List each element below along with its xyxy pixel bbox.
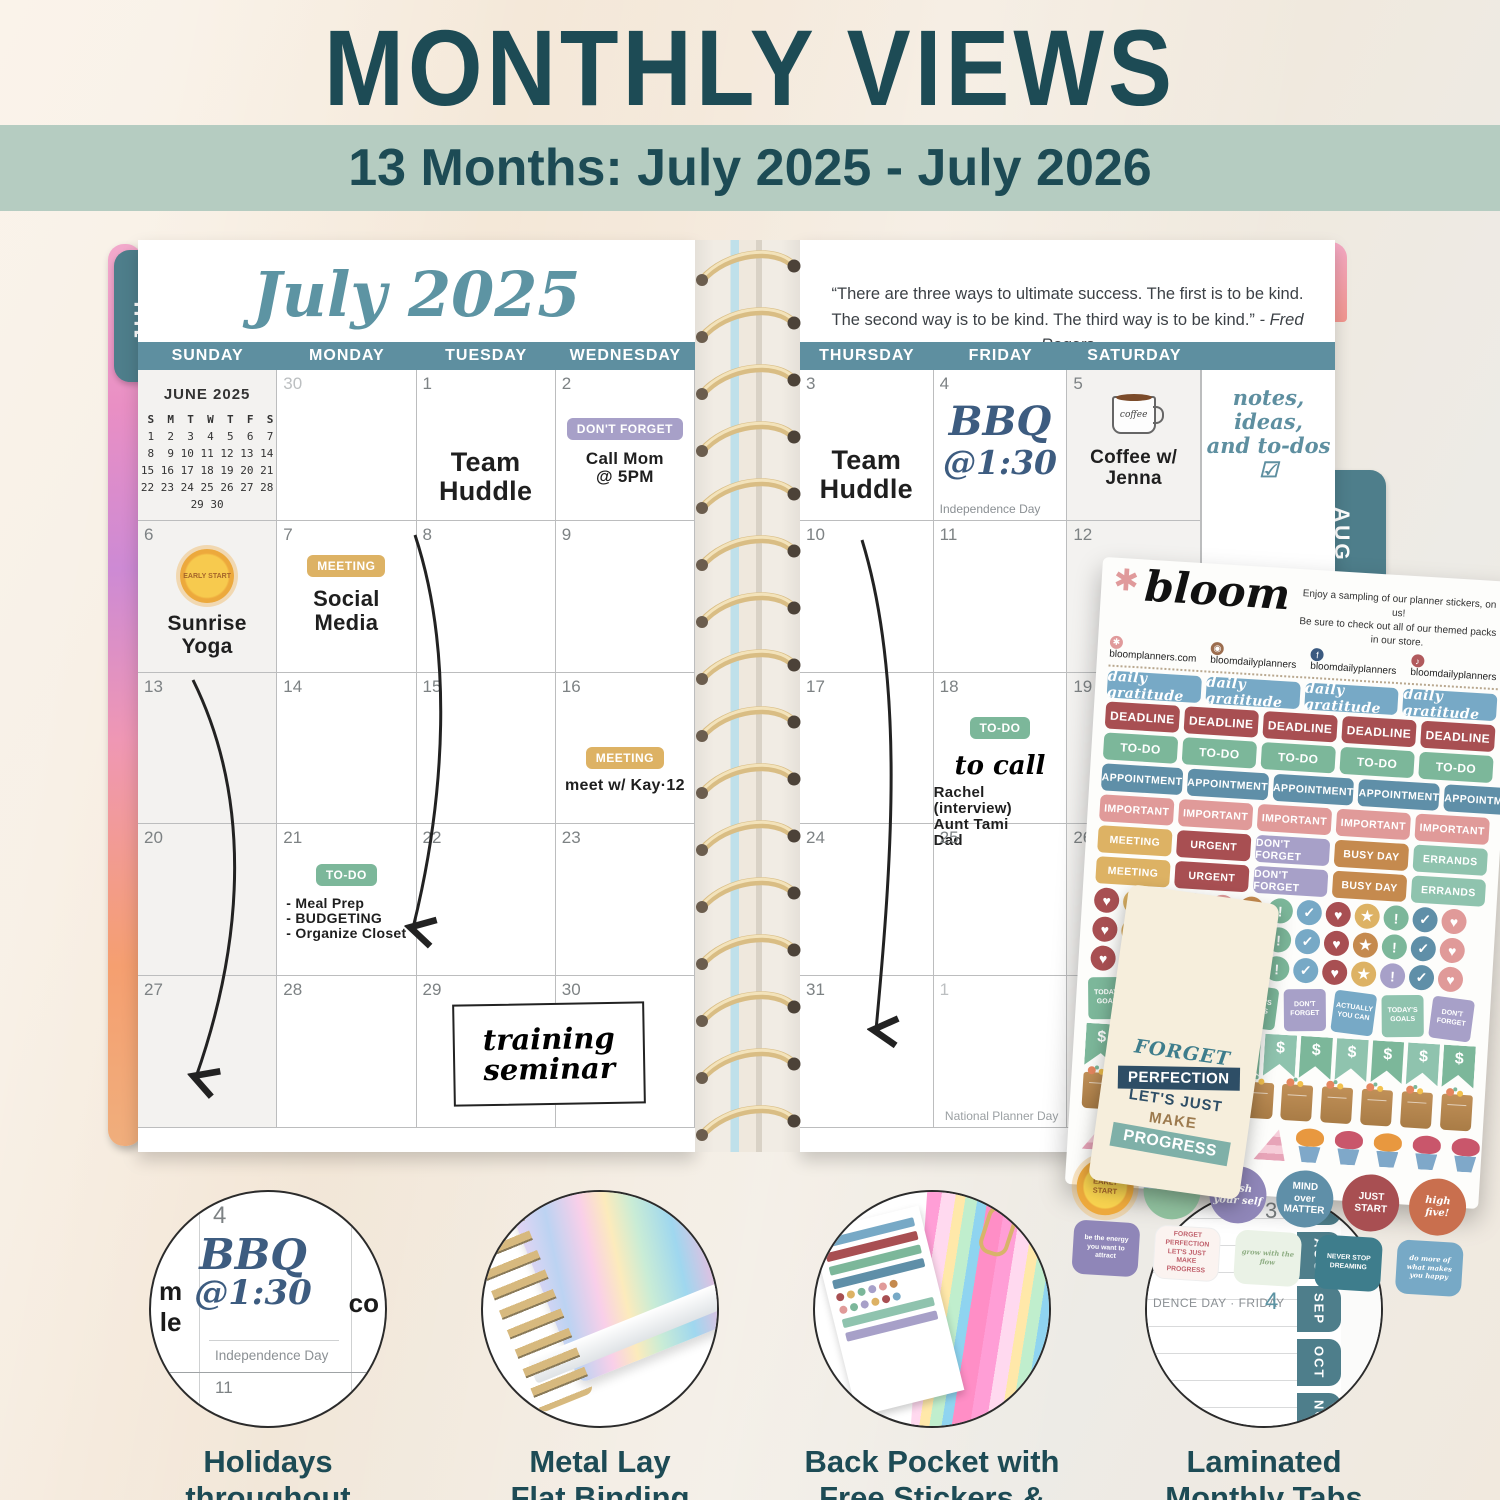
sticker-daily-gratitude: daily gratitude xyxy=(1304,683,1399,716)
sticker-dont-forget: DON'T FORGET xyxy=(1253,866,1329,897)
calendar-cell: 14 xyxy=(277,673,416,824)
subtitle-text: 13 Months: July 2025 - July 2026 xyxy=(348,138,1151,198)
holiday-label: Independence Day xyxy=(940,502,1041,516)
sticker-errands: ERRANDS xyxy=(1413,844,1489,875)
sticker-deadline: DEADLINE xyxy=(1341,716,1417,747)
sticker-busy-day: BUSY DAY xyxy=(1332,871,1408,902)
day-number: 12 xyxy=(361,1378,380,1398)
day-number: 11 xyxy=(215,1378,233,1398)
sticker-deadline: DEADLINE xyxy=(1420,721,1496,752)
heart-sticker-icon: ♥ xyxy=(1321,959,1347,985)
calendar-cell: 15 xyxy=(417,673,556,824)
heart-sticker-icon: ♥ xyxy=(1441,908,1467,934)
sticker-meeting: MEETING xyxy=(307,555,385,577)
dollar-flag-icon: $ xyxy=(1442,1045,1476,1089)
sticker-dont-forget-note: DON'T FORGET xyxy=(1284,989,1326,1031)
progress-quote-sticker: FORGET PERFECTION LET'S JUST MAKE PROGRE… xyxy=(1152,1224,1221,1282)
subtitle-band: 13 Months: July 2025 - July 2026 xyxy=(0,125,1500,211)
holiday-label: National Planner Day xyxy=(945,1109,1058,1123)
day-header-thursday: THURSDAY xyxy=(800,342,934,370)
entry-bbq: BBQ xyxy=(949,402,1051,442)
energy-quote-sticker: be the energy you want to attract xyxy=(1071,1219,1140,1277)
feature-photo-back-pocket xyxy=(813,1190,1051,1428)
sticker-appointment: APPOINTMENT xyxy=(1272,774,1354,806)
facebook-handle: fbloomdailyplanners xyxy=(1310,648,1400,677)
star-sticker-icon: ★ xyxy=(1354,903,1380,929)
sticker-busy-day: BUSY DAY xyxy=(1334,840,1410,871)
heart-sticker-icon: ♥ xyxy=(1323,930,1349,956)
day-number: 4 xyxy=(1265,1288,1278,1316)
dollar-flag-icon: $ xyxy=(1263,1034,1297,1078)
mini-calendar-june: JUNE 2025 S M T W T F S 1 2 3 4 5 6 7 8 … xyxy=(138,386,276,513)
entry-team-huddle: Team Huddle xyxy=(820,446,913,504)
sticker-daily-gratitude: daily gratitude xyxy=(1107,670,1202,703)
day-header-monday: MONDAY xyxy=(277,342,416,370)
sticker-daily-gratitude: daily gratitude xyxy=(1205,676,1300,709)
sticker-todo: TO-DO xyxy=(1260,742,1336,773)
calendar-cell: 31 xyxy=(800,976,934,1127)
calendar-cell: 8 xyxy=(417,521,556,672)
grocery-bag-icon xyxy=(1280,1084,1313,1122)
calendar-cell: 13 xyxy=(138,673,277,824)
heart-sticker-icon: ♥ xyxy=(1093,887,1119,913)
entry-bbq-time: @1:30 xyxy=(943,446,1057,479)
calendar-cell: 2 DON'T FORGET Call Mom @ 5PM xyxy=(556,370,695,521)
tab-sep: SEP xyxy=(1297,1286,1341,1333)
calendar-cell: 1 National Planner Day xyxy=(934,976,1068,1127)
entry-sunrise-yoga: Sunrise Yoga xyxy=(168,613,247,658)
calendar-cell: 27 xyxy=(138,976,277,1127)
calendar-cell: 7 MEETING Social Media xyxy=(277,521,416,672)
cake-slice-icon xyxy=(1251,1125,1287,1161)
instagram-handle: ◉bloomdailyplanners xyxy=(1210,642,1300,671)
day-number: 4 xyxy=(213,1202,226,1230)
feature-holidays: 4 BBQ @1:30 Independence Day 11 12 m le … xyxy=(98,1190,438,1500)
handwriting-fragment: m le xyxy=(159,1276,182,1338)
facebook-icon: f xyxy=(1311,648,1325,662)
website-link: ✱bloomplanners.com xyxy=(1109,636,1200,665)
calendar-cell: 3 Team Huddle xyxy=(800,370,934,521)
check-sticker-icon: ✓ xyxy=(1408,964,1434,990)
dollar-flag-icon: $ xyxy=(1334,1038,1368,1082)
just-start-sticker: JUST START xyxy=(1341,1173,1401,1233)
entry-training-seminar: training seminar xyxy=(452,1001,646,1106)
star-sticker-icon: ★ xyxy=(1350,961,1376,987)
spiral-binding xyxy=(688,232,808,1172)
day-header-saturday: SATURDAY xyxy=(1068,342,1202,370)
sticker-todays-goals: TODAY'S GOALS xyxy=(1381,995,1423,1037)
calendar-cell: 21 TO-DO - Meal Prep - BUDGETING - Organ… xyxy=(277,824,416,975)
sticker-dont-forget: DON'T FORGET xyxy=(567,418,683,440)
sticker-urgent: URGENT xyxy=(1174,861,1250,892)
calendar-cell: 4 BBQ @1:30 Independence Day xyxy=(934,370,1068,521)
check-sticker-icon: ✓ xyxy=(1294,928,1320,954)
calendar-left-page: July 2025 SUNDAY MONDAY TUESDAY WEDNESDA… xyxy=(138,240,695,1152)
feature-photo-holidays: 4 BBQ @1:30 Independence Day 11 12 m le … xyxy=(149,1190,387,1428)
bloom-flower-icon: ✱ xyxy=(1113,566,1140,597)
calendar-cell: 25 xyxy=(934,824,1068,975)
page-title: MONTHLY VIEWS xyxy=(0,7,1500,130)
calendar-cell: 24 xyxy=(800,824,934,975)
sticker-urgent: URGENT xyxy=(1176,830,1252,861)
feature-caption: Holidays throughout xyxy=(98,1444,438,1500)
sticker-appointment: APPOINTMENT xyxy=(1358,779,1440,811)
check-sticker-icon: ✓ xyxy=(1296,899,1322,925)
heart-sticker-icon: ♥ xyxy=(1439,937,1465,963)
dreaming-quote-sticker: NEVER STOP DREAMING xyxy=(1314,1234,1383,1292)
happy-quote-sticker: do more of what makes you happy xyxy=(1395,1239,1464,1297)
sticker-meeting: MEETING xyxy=(586,747,664,769)
calendar-cell: 6 EARLY START Sunrise Yoga xyxy=(138,521,277,672)
entry-coffee-jenna: Coffee w/ Jenna xyxy=(1090,448,1177,489)
entry-to-call: to call xyxy=(955,751,1046,781)
day-header-tuesday: TUESDAY xyxy=(417,342,556,370)
cupcake-icon xyxy=(1332,1130,1364,1166)
heart-sticker-icon: ♥ xyxy=(1325,901,1351,927)
day-header-sunday: SUNDAY xyxy=(138,342,277,370)
flow-quote-sticker: grow with the flow xyxy=(1233,1229,1302,1287)
feature-photo-binding xyxy=(481,1190,719,1428)
tab-nov: NOV xyxy=(1297,1393,1341,1428)
sticker-todo: TO-DO xyxy=(1182,737,1258,768)
dollar-flag-icon: $ xyxy=(1370,1040,1404,1084)
check-sticker-icon: ✓ xyxy=(1412,907,1438,933)
entry-team-huddle: Team Huddle xyxy=(439,448,532,506)
calendar-cell: 22 xyxy=(417,824,556,975)
bookmark-line: PERFECTION xyxy=(1118,1066,1240,1091)
sticker-dont-forget-note: DON'T FORGET xyxy=(1428,996,1475,1043)
sticker-important: IMPORTANT xyxy=(1257,804,1333,835)
sticker-daily-gratitude: daily gratitude xyxy=(1402,689,1497,722)
month-title: July 2025 xyxy=(138,258,695,331)
instagram-icon: ◉ xyxy=(1211,642,1225,656)
calendar-cell: 17 xyxy=(800,673,934,824)
tiktok-icon: ♪ xyxy=(1411,654,1425,668)
sticker-appointment: APPOINTMENT xyxy=(1187,769,1269,801)
calendar-cell: 1 Team Huddle xyxy=(417,370,556,521)
cupcake-icon xyxy=(1371,1133,1403,1169)
sticker-meeting: MEETING xyxy=(1095,856,1171,887)
coffee-mug-icon: coffee xyxy=(1112,396,1156,434)
handwriting-fragment: co xyxy=(349,1288,379,1319)
sticker-sheet-blurb: Enjoy a sampling of our planner stickers… xyxy=(1293,577,1500,656)
high-five-sticker: high five! xyxy=(1407,1177,1467,1237)
entry-social-media: Social Media xyxy=(313,587,380,635)
sticker-appointment: APPOINTMENT xyxy=(1101,763,1183,795)
dollar-flag-icon: $ xyxy=(1299,1036,1333,1080)
dollar-flag-icon: $ xyxy=(1406,1042,1440,1086)
cupcake-icon xyxy=(1410,1135,1442,1171)
sticker-todo: TO-DO xyxy=(1418,752,1494,783)
notes-ideas-art: notes, ideas, and to-dos ☑ xyxy=(1202,386,1335,483)
calendar-cell: 5 coffee Coffee w/ Jenna xyxy=(1067,370,1201,521)
bloom-logo: bloom xyxy=(1143,568,1291,615)
exclamation-sticker-icon: ! xyxy=(1381,934,1407,960)
calendar-cell: 10 xyxy=(800,521,934,672)
check-sticker-icon: ✓ xyxy=(1293,957,1319,983)
holiday-label: Independence Day xyxy=(215,1348,328,1363)
sticker-actually-you-can: ACTUALLY YOU CAN xyxy=(1330,990,1377,1037)
sticker-todo: TO-DO xyxy=(1339,747,1415,778)
calendar-cell: 20 xyxy=(138,824,277,975)
entry-todo-list: - Meal Prep - BUDGETING - Organize Close… xyxy=(286,896,406,941)
tab-oct: OCT xyxy=(1297,1339,1341,1386)
day-header-row-left: SUNDAY MONDAY TUESDAY WEDNESDAY xyxy=(138,342,695,370)
sticker-todo: TO-DO xyxy=(1103,732,1179,763)
sticker-to-do: TO-DO xyxy=(970,717,1031,739)
grocery-bag-icon xyxy=(1360,1089,1393,1127)
day-header-friday: FRIDAY xyxy=(934,342,1068,370)
sticker-deadline: DEADLINE xyxy=(1105,701,1181,732)
calendar-cell: 30 xyxy=(277,370,416,521)
sticker-appointment: APPOINTMENT xyxy=(1444,784,1500,816)
cupcake-icon xyxy=(1449,1137,1481,1173)
mind-over-matter-sticker: MIND over MATTER xyxy=(1274,1169,1334,1229)
day-header-notes xyxy=(1201,342,1335,370)
grocery-bag-icon xyxy=(1400,1091,1433,1129)
feature-caption: Laminated Monthly Tabs xyxy=(1094,1444,1434,1500)
calendar-cell: 9 xyxy=(556,521,695,672)
entry-call-mom: Call Mom @ 5PM xyxy=(586,450,664,487)
entry-bbq: BBQ xyxy=(151,1234,355,1276)
calendar-cell: 23 xyxy=(556,824,695,975)
bookmark-line: LET'S JUST xyxy=(1128,1086,1224,1116)
calendar-cell: 16 MEETING meet w/ Kay·12 xyxy=(556,673,695,824)
product-image: MONTHLY VIEWS 13 Months: July 2025 - Jul… xyxy=(0,0,1500,1500)
check-sticker-icon: ✓ xyxy=(1410,935,1436,961)
cupcake-icon xyxy=(1294,1128,1326,1164)
calendar-cell: JUNE 2025 S M T W T F S 1 2 3 4 5 6 7 8 … xyxy=(138,370,277,521)
sticker-meeting: MEETING xyxy=(1097,825,1173,856)
sticker-important: IMPORTANT xyxy=(1414,814,1490,845)
day-header-wednesday: WEDNESDAY xyxy=(556,342,695,370)
sun-sticker-icon: EARLY START xyxy=(180,549,234,603)
feature-back-pocket: Back Pocket with Free Stickers & Bookmar… xyxy=(762,1190,1102,1500)
sticker-errands: ERRANDS xyxy=(1411,875,1487,906)
tiktok-handle: ♪bloomdailyplanners xyxy=(1410,654,1500,683)
entry-meet-kay: meet w/ Kay·12 xyxy=(565,777,685,794)
grocery-bag-icon xyxy=(1440,1094,1473,1132)
day-header-row-right: THURSDAY FRIDAY SATURDAY xyxy=(800,342,1335,370)
flower-icon: ✱ xyxy=(1110,636,1124,650)
star-sticker-icon: ★ xyxy=(1352,932,1378,958)
exclamation-sticker-icon: ! xyxy=(1383,905,1409,931)
calendar-cell: 11 xyxy=(934,521,1068,672)
feature-caption: Back Pocket with Free Stickers & Bookmar… xyxy=(762,1444,1102,1500)
heart-sticker-icon: ♥ xyxy=(1092,916,1118,942)
sticker-to-do: TO-DO xyxy=(316,864,377,886)
heart-sticker-icon: ♥ xyxy=(1090,945,1116,971)
calendar-cell: 18 TO-DO to call Rachel (interview) Aunt… xyxy=(934,673,1068,824)
grocery-bag-icon xyxy=(1320,1086,1353,1124)
exclamation-sticker-icon: ! xyxy=(1379,963,1405,989)
sticker-dont-forget: DON'T FORGET xyxy=(1255,835,1331,866)
sticker-important: IMPORTANT xyxy=(1099,794,1175,825)
calendar-cell: 28 xyxy=(277,976,416,1127)
sticker-deadline: DEADLINE xyxy=(1262,711,1338,742)
sticker-important: IMPORTANT xyxy=(1336,809,1412,840)
feature-binding: Metal Lay Flat Binding xyxy=(430,1190,770,1500)
sticker-deadline: DEADLINE xyxy=(1184,706,1260,737)
feature-caption: Metal Lay Flat Binding xyxy=(430,1444,770,1500)
heart-sticker-icon: ♥ xyxy=(1437,966,1463,992)
sticker-important: IMPORTANT xyxy=(1178,799,1254,830)
